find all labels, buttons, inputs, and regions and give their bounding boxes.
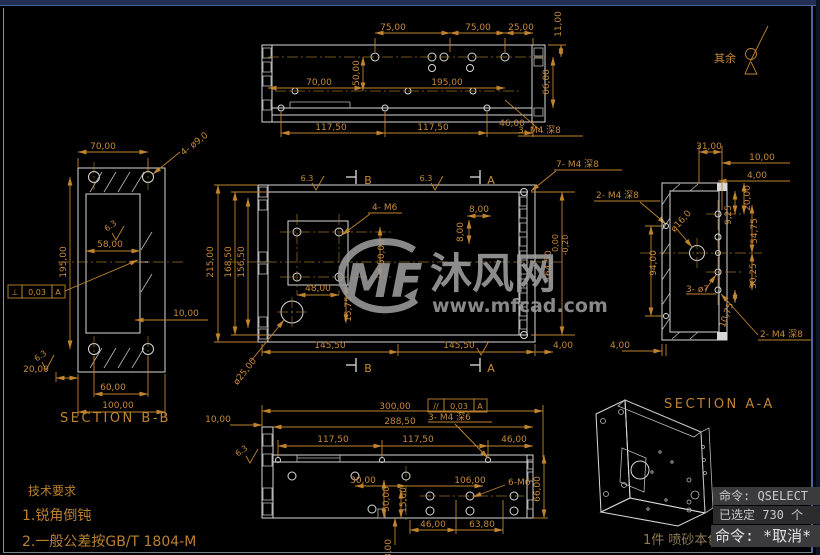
command-prompt-line[interactable]: 命令: *取消* [711, 525, 820, 547]
dim-label: 10,75 [718, 301, 736, 329]
tech-req-item-2: 2.一般公差按GB/T 1804-M [22, 531, 196, 551]
dim-label: 30,00 [350, 476, 376, 486]
technical-requirements: 技术要求 1.锐角倒钝 2.一般公差按GB/T 1804-M [22, 482, 196, 551]
gdt-value: 0,03 [28, 288, 46, 297]
dim-label: 10,00 [205, 415, 231, 425]
thread-note: 2- M4 深8 [760, 329, 803, 340]
dim-label: 48,00 [305, 284, 331, 294]
dim-label: 54,75 [750, 218, 760, 244]
dim-label: 4,00 [747, 171, 767, 181]
dim-label: 66,00 [542, 69, 552, 95]
dim-label: 8,00 [469, 205, 489, 215]
watermark-logo: MF [345, 254, 422, 308]
isometric-3d-view [596, 400, 713, 526]
dim-label: 70,00 [90, 142, 116, 152]
thread-note: 6-M6 [508, 478, 531, 488]
dim-label: 195,00 [431, 78, 463, 88]
window-top-border [0, 0, 820, 6]
dim-label: 288,50 [384, 417, 416, 427]
dim-label: 168,50 [224, 246, 234, 278]
dim-label: 4,00 [610, 341, 630, 351]
tech-req-title: 技术要求 [28, 482, 196, 499]
dim-label: 58,00 [97, 240, 123, 250]
thread-note: 4- M6 [372, 203, 398, 213]
dim-label: 60,00 [100, 383, 126, 393]
dim-label: 50,00 [352, 60, 362, 86]
dim-label: 75,00 [380, 23, 406, 33]
dim-label: 46,00 [420, 520, 446, 530]
section-mark-b: B [364, 174, 372, 187]
dim-label: 195,00 [59, 246, 69, 278]
watermark-url: www.mfcad.com [432, 295, 608, 317]
dim-label: 100,00 [102, 401, 134, 411]
dim-label: 145,50 [443, 341, 475, 351]
default-roughness-note: 其余 [714, 26, 768, 74]
roughness-label: 6.3 [33, 349, 49, 364]
roughness-label: 6.3 [301, 174, 314, 183]
section-bb-label: SECTION B-B [60, 411, 171, 426]
dim-label: 75,00 [465, 23, 491, 33]
canvas-bottom-border [3, 552, 812, 553]
thread-note: 3- M4 深6 [428, 412, 471, 423]
dim-label: 50,00 [382, 486, 392, 512]
dim-label: 15,00 [399, 487, 409, 513]
section-bb-dimensions: ⊥ 0,03 A 70,00 4- ø9,0 58,00 195,00 10,0… [8, 131, 211, 426]
roughness-label: 6.3 [420, 174, 433, 183]
thread-note: 2- M4 深8 [596, 190, 639, 201]
dim-label: 20,00 [743, 185, 753, 211]
thread-note: 7- M4 深8 [556, 159, 599, 170]
dim-label: 117,50 [402, 435, 434, 445]
dim-label: 10,00 [173, 309, 199, 319]
dim-label: 46,00 [501, 435, 527, 445]
dim-label: 215,00 [206, 246, 216, 278]
canvas-left-border [3, 8, 4, 552]
tolerance-lower: -0,20 [561, 235, 570, 256]
dim-label: 9,25 [724, 205, 734, 225]
dim-label: 156,50 [237, 246, 247, 278]
hole-note: ø25,00 [232, 356, 259, 387]
hole-note: 3- ø7 [686, 285, 709, 295]
bottom-view-dimensions: 300,00 // 0,03 A 288,50 3- M4 深6 117,50 … [205, 399, 548, 555]
bottom-view-geometry [262, 427, 533, 522]
gdt-value: 0,03 [450, 402, 468, 411]
dim-label: 30,25 [749, 263, 759, 289]
section-mark-a: A [487, 174, 495, 187]
roughness-label: 6.3 [103, 219, 119, 234]
command-history-line-2: 已选定 730 个 [713, 506, 820, 524]
dim-label: 117,50 [417, 123, 449, 133]
dim-label: 117,50 [315, 123, 347, 133]
dim-label: 11,00 [554, 11, 564, 37]
dim-label: 94,00 [649, 250, 659, 276]
dim-label: 117,50 [317, 435, 349, 445]
dim-label: 300,00 [379, 402, 411, 412]
window-right-edge [816, 0, 820, 555]
gdt-datum: A [55, 288, 61, 297]
part-finish-note: 1件 喷砂本色 [643, 529, 720, 548]
surface-rest-label: 其余 [714, 51, 736, 65]
watermark-name: 沐风网 [430, 249, 556, 298]
hole-note: ø16,0 [669, 209, 694, 235]
dim-label: 63,80 [469, 520, 495, 530]
section-bb-geometry [58, 162, 185, 380]
hole-note: 4- ø9,0 [179, 131, 210, 159]
roughness-label: 6.3 [234, 444, 250, 459]
section-aa-label: SECTION A-A [664, 397, 775, 412]
dim-label: 145,50 [314, 341, 346, 351]
canvas-right-border [811, 5, 813, 553]
dim-label: 20,00 [23, 365, 49, 375]
dim-label: 25,00 [508, 23, 534, 33]
dim-label: 10,00 [749, 153, 775, 163]
section-mark-a: A [487, 362, 495, 375]
command-history-line-1: 命令: QSELECT [713, 487, 820, 505]
drawing-canvas[interactable]: 75,00 75,00 25,00 11,00 66,00 50,00 70,0… [0, 0, 820, 555]
tech-req-item-1: 1.锐角倒钝 [22, 505, 196, 525]
top-view-dimensions: 75,00 75,00 25,00 11,00 66,00 50,00 70,0… [268, 11, 583, 137]
dim-label: 31,00 [696, 142, 722, 152]
gdt-symbol: // [433, 402, 439, 411]
dim-label: 106,00 [454, 476, 486, 486]
dim-label: 70,00 [306, 78, 332, 88]
thread-note: 3- M4 深8 [518, 125, 561, 136]
gdt-datum: A [477, 402, 483, 411]
gdt-symbol: ⊥ [12, 288, 19, 297]
dim-label: 8,00 [456, 222, 466, 242]
top-view-geometry [262, 45, 548, 122]
dim-label: 4,00 [553, 341, 573, 351]
dim-label: 66,00 [533, 476, 543, 502]
cad-application-window: 75,00 75,00 25,00 11,00 66,00 50,00 70,0… [0, 0, 820, 555]
section-mark-b: B [364, 362, 372, 375]
